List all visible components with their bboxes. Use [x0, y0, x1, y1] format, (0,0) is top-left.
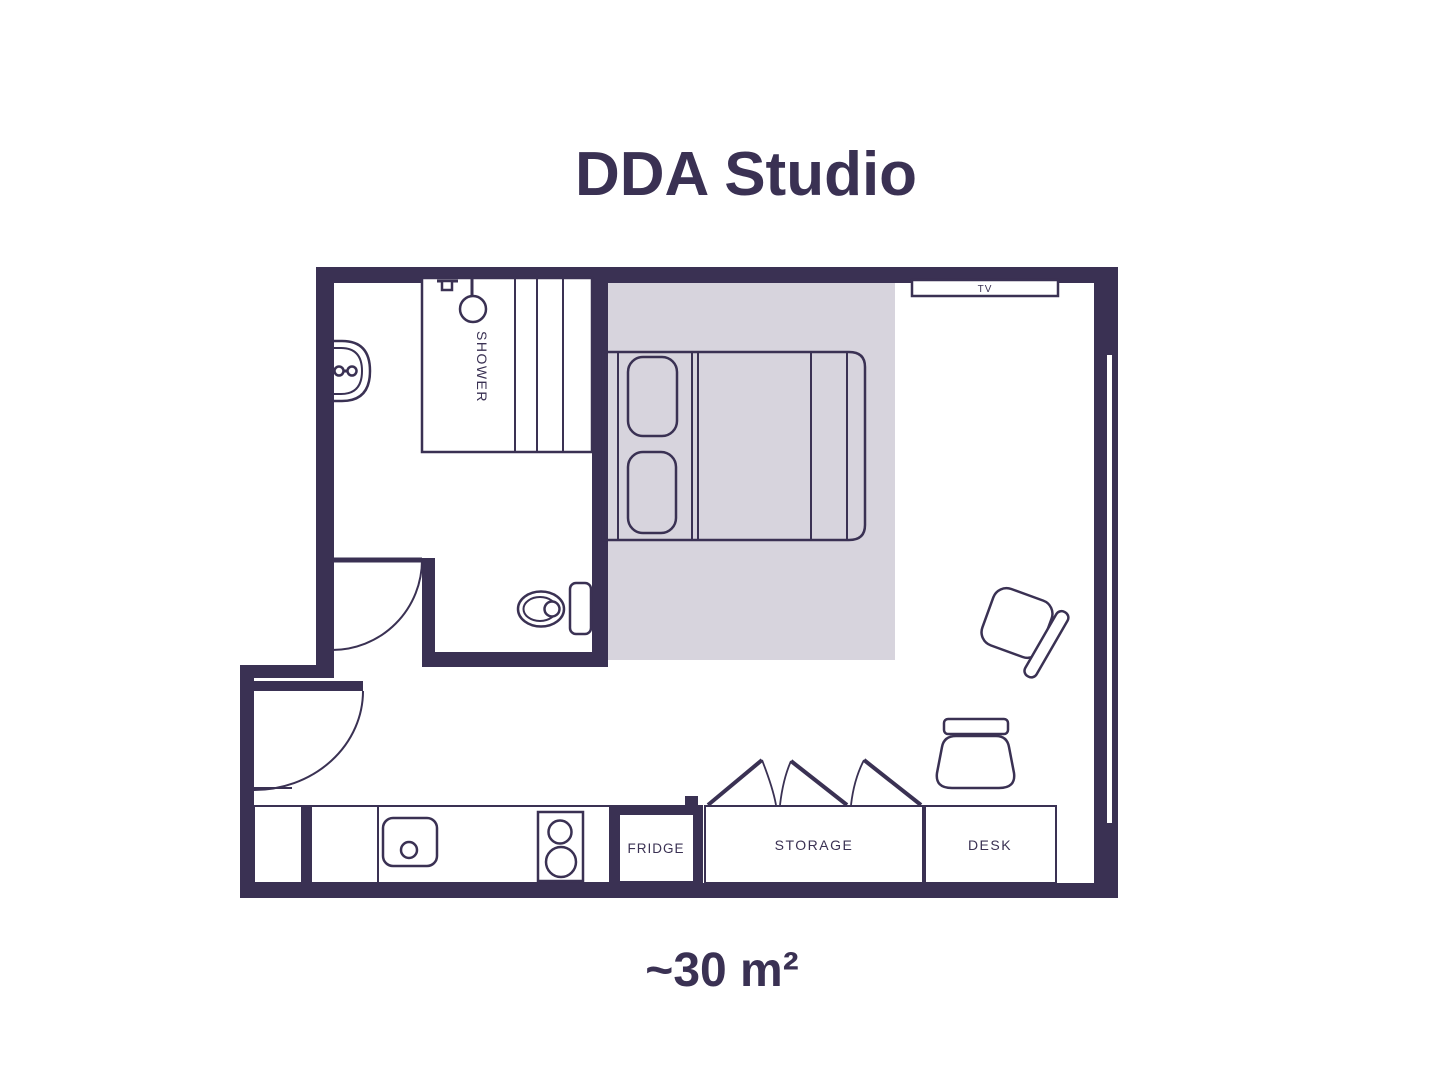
wall-entry-step [240, 665, 334, 678]
wall-bathroom-stub [422, 558, 435, 667]
window [1107, 355, 1112, 823]
area-label: ~30 m² [645, 944, 798, 997]
counter-wall-stub [301, 806, 312, 883]
basin-handle [335, 367, 344, 376]
shower-valve-icon [442, 281, 452, 290]
bed-zone-highlight [600, 283, 895, 660]
stove-burner [546, 847, 576, 877]
desk-chair-seat [937, 736, 1014, 788]
wall-right [1094, 267, 1118, 898]
tv-label: TV [978, 284, 993, 295]
toilet-tank [570, 583, 591, 634]
floor-plan: DDA Studio SHOWER [0, 0, 1440, 1080]
shower-icon [422, 278, 592, 452]
stove-burner [549, 821, 572, 844]
wall-bathroom-bottom [422, 652, 608, 667]
kitchen-counter [254, 806, 610, 883]
shower-head-icon [460, 296, 486, 322]
shower-label: SHOWER [474, 331, 490, 403]
wall-entry-left [240, 665, 254, 898]
desk-label: DESK [968, 837, 1012, 853]
entry-door-leaf [248, 681, 363, 691]
basin-icon [334, 341, 370, 401]
basin-handle [348, 367, 357, 376]
wall-left [316, 267, 334, 678]
page-title: DDA Studio [575, 140, 917, 209]
storage-label: STORAGE [775, 837, 854, 853]
toilet-flush [545, 602, 560, 617]
floor-plan-page: DDA Studio SHOWER [0, 0, 1440, 1080]
desk-chair-back [944, 719, 1008, 734]
wall-bathroom-right [592, 283, 608, 667]
fridge-tab [685, 796, 698, 807]
desk-chair-icon [937, 719, 1014, 788]
fridge-label: FRIDGE [627, 841, 684, 856]
kitchen-sink-drain [401, 842, 417, 858]
shower-tray [422, 278, 592, 452]
